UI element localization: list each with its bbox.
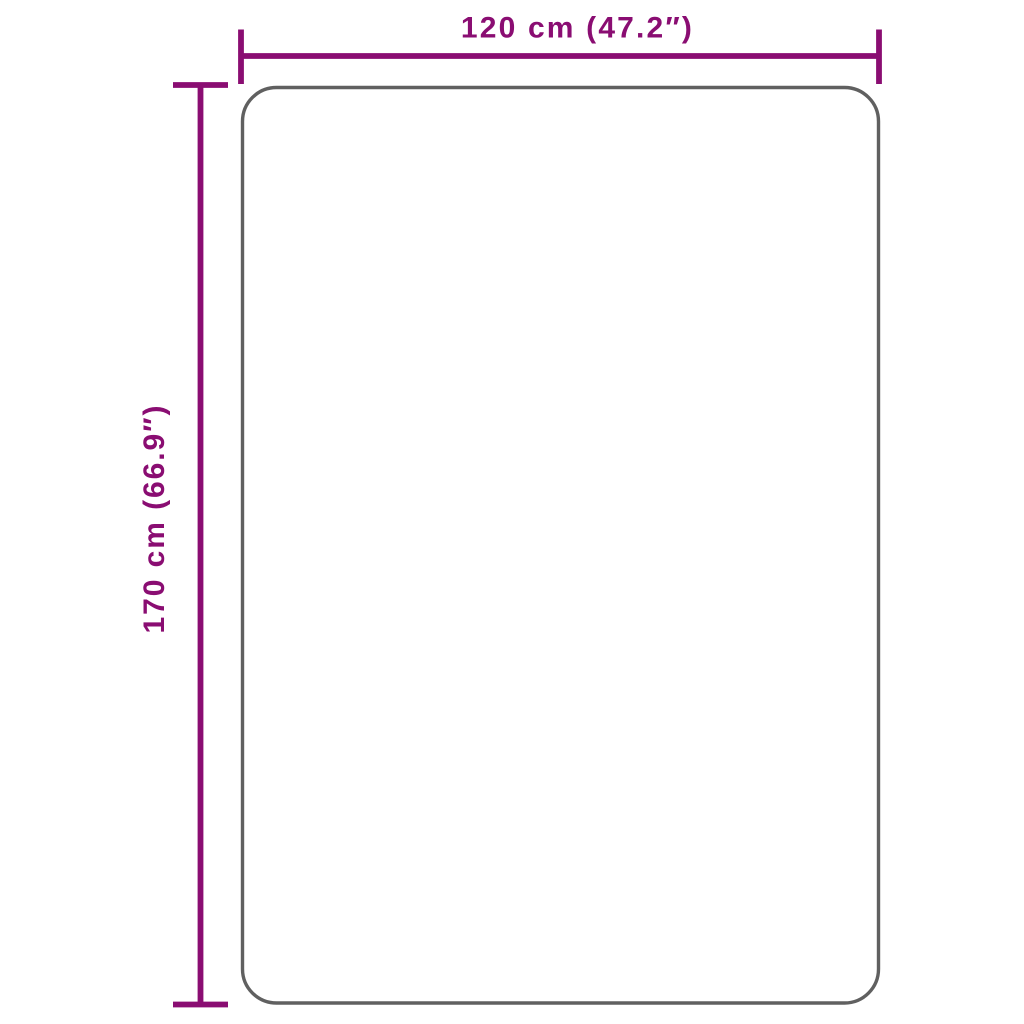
svg-text:170 cm (66.9″): 170 cm (66.9″) [138,406,171,634]
svg-text:120 cm (47.2″): 120 cm (47.2″) [461,11,692,44]
